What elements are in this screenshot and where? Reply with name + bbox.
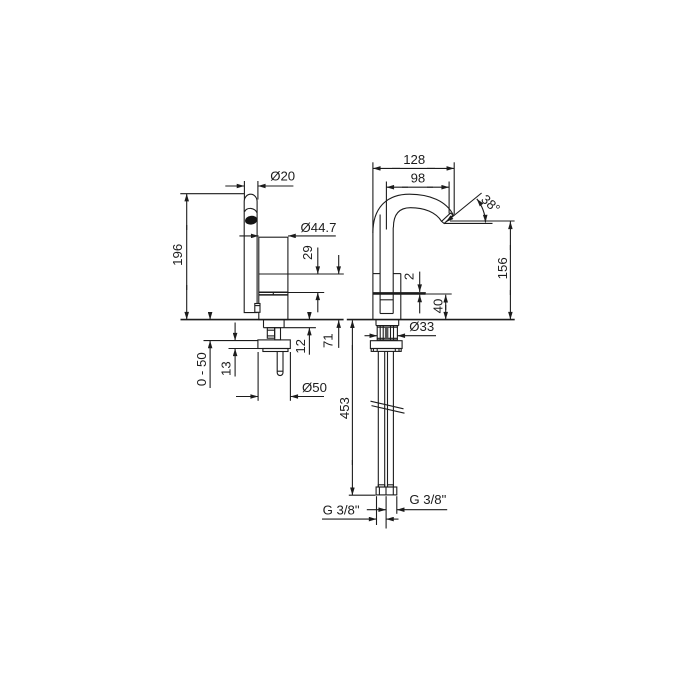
svg-text:Ø33: Ø33	[409, 319, 434, 334]
svg-text:Ø20: Ø20	[270, 169, 295, 184]
svg-text:40: 40	[430, 299, 445, 314]
svg-text:38°: 38°	[478, 192, 503, 217]
svg-text:128: 128	[403, 152, 425, 167]
svg-text:196: 196	[170, 244, 185, 266]
svg-text:156: 156	[495, 257, 510, 279]
svg-text:Ø50: Ø50	[302, 380, 327, 395]
svg-text:G 3/8": G 3/8"	[323, 502, 360, 517]
svg-text:Ø44.7: Ø44.7	[301, 220, 337, 235]
svg-text:12: 12	[293, 339, 308, 354]
svg-text:29: 29	[300, 245, 315, 260]
svg-text:G 3/8": G 3/8"	[409, 492, 446, 507]
svg-text:453: 453	[337, 397, 352, 419]
svg-text:71: 71	[320, 333, 335, 348]
svg-text:13: 13	[218, 361, 233, 376]
svg-text:98: 98	[411, 171, 426, 186]
svg-text:2: 2	[402, 273, 417, 280]
svg-text:0 - 50: 0 - 50	[194, 352, 209, 386]
